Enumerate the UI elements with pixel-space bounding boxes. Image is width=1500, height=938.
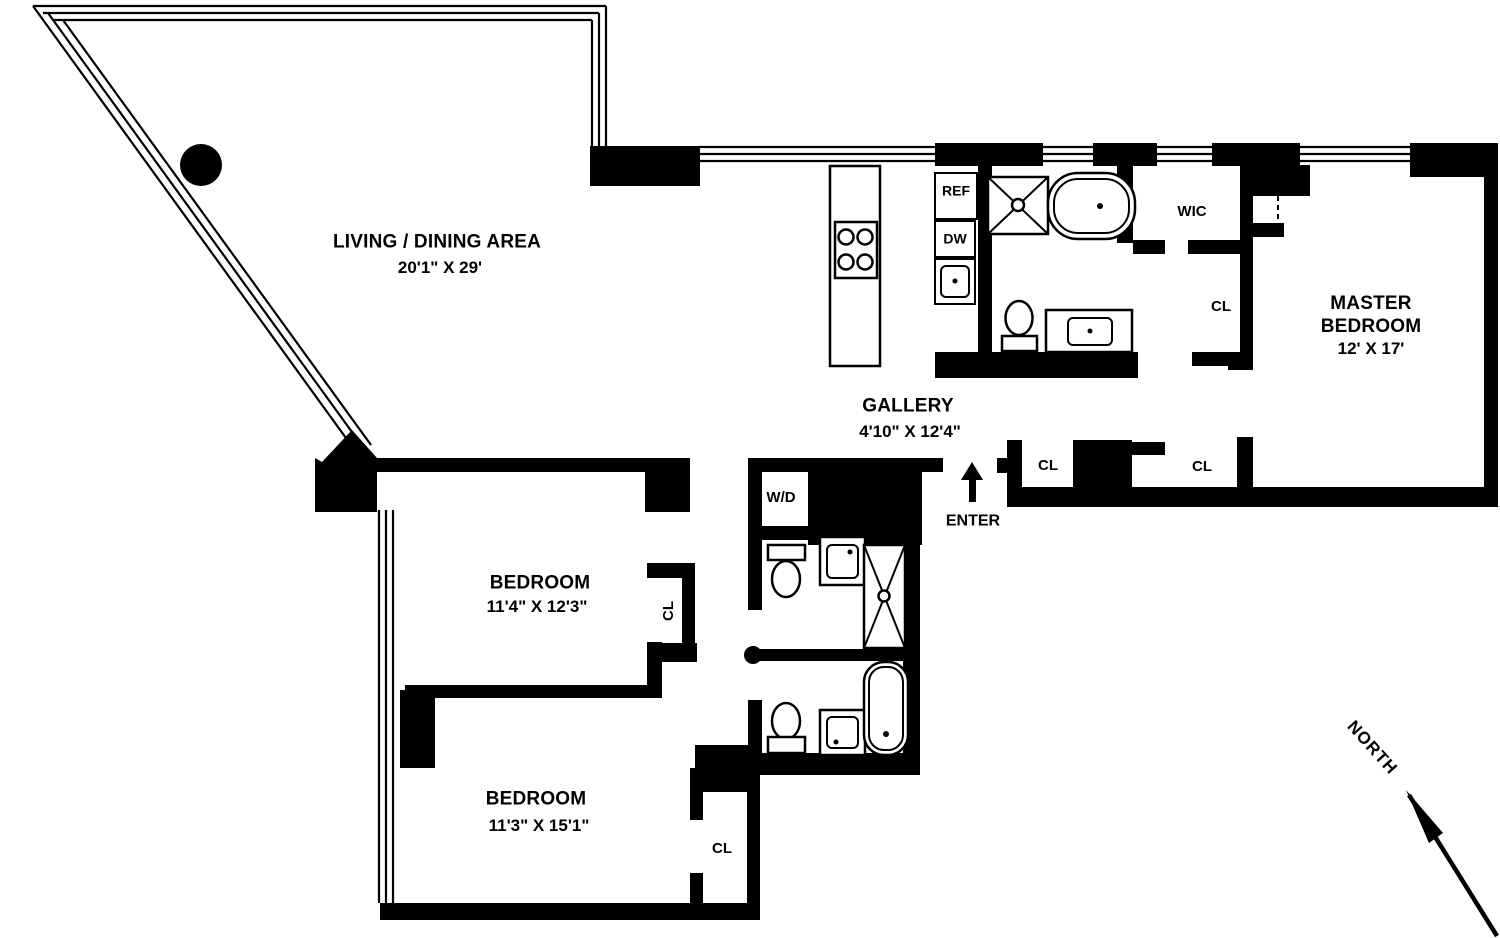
- sink-basin: [827, 717, 858, 748]
- door-pivot-dot: [744, 646, 762, 664]
- wall-segment: [690, 873, 703, 907]
- living-room-dims: 20'1" X 29': [398, 258, 482, 278]
- tub-drain: [1097, 203, 1103, 209]
- toilet-bowl: [772, 703, 800, 739]
- sink-basin: [827, 545, 858, 578]
- wall-segment: [645, 462, 690, 512]
- bathtub-icon: [1048, 173, 1135, 239]
- closet-label-hall2: CL: [1192, 458, 1212, 476]
- wall-segment: [1132, 442, 1165, 455]
- toilet-tank: [1002, 336, 1037, 351]
- toilet-bowl: [1006, 301, 1033, 335]
- sink-drain: [848, 550, 853, 555]
- toilet-icon: [768, 545, 805, 597]
- dishwasher-label: DW: [943, 231, 966, 248]
- toilet-tank: [768, 545, 805, 560]
- wall-segment: [935, 143, 1043, 166]
- burner: [839, 230, 854, 245]
- toilet-tank: [768, 737, 805, 753]
- stove-icon: [835, 222, 877, 278]
- living-room-label: LIVING / DINING AREA: [333, 232, 541, 255]
- tub-inner: [1054, 179, 1129, 233]
- wall-segment: [748, 458, 762, 532]
- closet-label-bedroom2: CL: [712, 840, 732, 858]
- sink-icon: [820, 537, 865, 585]
- shower-icon: [864, 545, 905, 648]
- wall-segment: [747, 792, 760, 907]
- wall-segment: [997, 458, 1007, 473]
- gallery-dims: 4'10" X 12'4": [859, 422, 961, 442]
- wall-segment: [1484, 143, 1498, 507]
- toilet-bowl: [772, 561, 800, 597]
- enter-arrow-icon: [961, 462, 983, 502]
- kitchen-sink-icon: [935, 259, 975, 304]
- wall-segment: [1253, 223, 1284, 237]
- wall-segment: [1253, 165, 1310, 196]
- bedroom1-label: BEDROOM: [490, 573, 591, 596]
- wall-segment: [695, 745, 760, 792]
- wall-segment: [1237, 440, 1252, 487]
- refrigerator-label: REF: [942, 183, 970, 200]
- bedroom2-dims: 11'3" X 15'1": [489, 816, 590, 836]
- bathroom-lower: [768, 662, 908, 755]
- washer-dryer-label: W/D: [766, 489, 795, 507]
- burner: [858, 230, 873, 245]
- tub-inner: [869, 667, 903, 750]
- vanity-sink-icon: [1046, 310, 1132, 352]
- window-line: [63, 20, 371, 445]
- window-line: [33, 6, 359, 456]
- enter-label: ENTER: [946, 511, 1000, 530]
- sink-drain: [953, 279, 958, 284]
- toilet-icon: [768, 703, 805, 753]
- wall-segment: [405, 685, 655, 698]
- wall-segment: [1093, 143, 1157, 166]
- wall-segment: [1212, 143, 1300, 166]
- wall-segment: [760, 753, 920, 775]
- bedroom2-label: BEDROOM: [486, 789, 587, 812]
- wall-segment: [1133, 240, 1165, 254]
- burner: [839, 255, 854, 270]
- wall-segment: [748, 458, 943, 472]
- closet-label-hall1: CL: [1038, 457, 1058, 475]
- wall-segment: [752, 649, 905, 661]
- wall-segment: [647, 563, 692, 578]
- shower-icon: [988, 177, 1048, 234]
- wall-segment: [590, 146, 700, 186]
- closet-label-bedroom1: CL: [660, 601, 678, 621]
- window-line: [48, 13, 365, 450]
- wall-segment: [690, 768, 703, 820]
- wall-segment: [935, 352, 1138, 378]
- wall-segment: [357, 458, 690, 472]
- shower-drain: [1012, 199, 1024, 211]
- floor-plan-drawing: [0, 0, 1500, 938]
- tub-drain: [883, 731, 889, 737]
- column-dot: [180, 144, 222, 186]
- wall-segment: [1007, 487, 1498, 507]
- north-head: [1406, 790, 1443, 843]
- wall-segment: [1240, 165, 1253, 368]
- wall-segment: [1228, 357, 1253, 370]
- closet-label-wic: CL: [1211, 298, 1231, 316]
- bathroom-upper: [768, 537, 905, 648]
- floor-plan: LIVING / DINING AREA 20'1" X 29' GALLERY…: [0, 0, 1500, 938]
- wic-label: WIC: [1177, 203, 1206, 221]
- master-bedroom-label: MASTER BEDROOM: [1296, 293, 1446, 339]
- bathtub-icon: [864, 662, 908, 755]
- bathroom-master: [988, 173, 1135, 352]
- wall-segment: [1007, 440, 1022, 487]
- gallery-label: GALLERY: [862, 396, 953, 419]
- wall-segment: [400, 690, 435, 768]
- sink-drain: [834, 740, 839, 745]
- burner: [858, 255, 873, 270]
- wall-segment: [1073, 440, 1132, 488]
- toilet-icon: [1002, 301, 1037, 351]
- wall-segment: [808, 470, 922, 545]
- vanity-drain: [1088, 329, 1093, 334]
- north-arrow-icon: [1406, 790, 1497, 936]
- bedroom1-dims: 11'4" X 12'3": [487, 597, 588, 617]
- shower-drain: [879, 591, 890, 602]
- master-bedroom-dims: 12' X 17': [1338, 339, 1405, 359]
- sink-icon: [820, 710, 865, 755]
- arrow-head: [961, 462, 983, 480]
- wall-segment: [748, 526, 762, 610]
